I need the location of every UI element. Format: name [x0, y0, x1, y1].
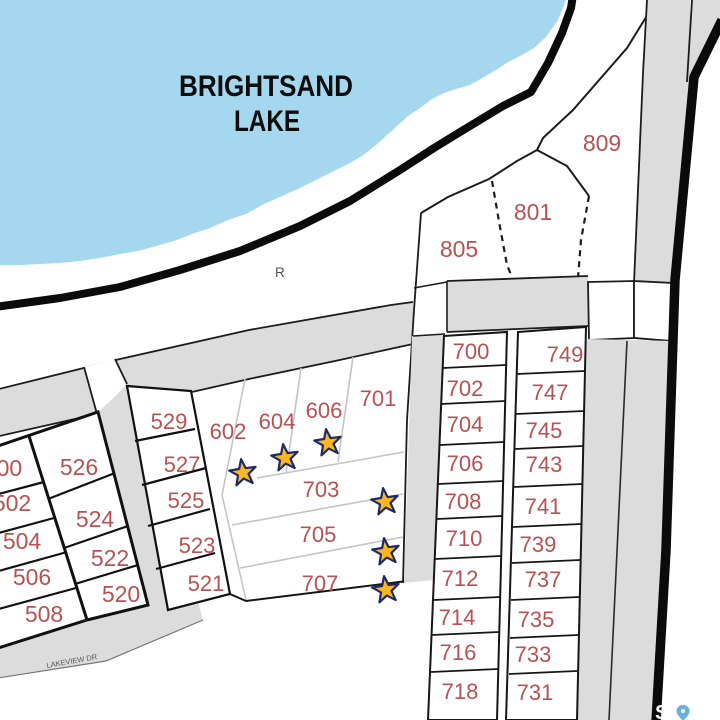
svg-text:702: 702: [447, 376, 484, 401]
svg-text:BRIGHTSAND: BRIGHTSAND: [179, 70, 353, 103]
svg-text:LAKE: LAKE: [234, 105, 300, 138]
svg-text:R: R: [275, 265, 285, 280]
svg-text:522: 522: [91, 545, 129, 571]
svg-text:714: 714: [439, 605, 476, 630]
svg-text:706: 706: [447, 451, 484, 476]
svg-text:703: 703: [303, 477, 340, 502]
svg-text:700: 700: [453, 339, 490, 364]
svg-text:718: 718: [442, 679, 479, 704]
svg-text:525: 525: [168, 488, 205, 513]
svg-text:529: 529: [151, 409, 188, 434]
svg-text:504: 504: [3, 528, 42, 554]
svg-text:502: 502: [0, 490, 31, 516]
svg-text:604: 604: [259, 409, 296, 434]
svg-text:739: 739: [520, 532, 557, 557]
svg-text:731: 731: [517, 680, 554, 705]
svg-text:701: 701: [360, 386, 397, 411]
svg-text:743: 743: [526, 452, 563, 477]
svg-text:745: 745: [526, 418, 563, 443]
svg-text:500: 500: [0, 455, 22, 481]
svg-text:735: 735: [518, 607, 555, 632]
svg-text:508: 508: [25, 601, 63, 627]
svg-text:526: 526: [60, 454, 98, 480]
svg-text:737: 737: [525, 567, 562, 592]
svg-text:716: 716: [440, 640, 477, 665]
svg-text:524: 524: [76, 506, 115, 532]
svg-text:606: 606: [306, 398, 343, 423]
svg-text:506: 506: [13, 564, 51, 590]
svg-text:707: 707: [302, 571, 339, 596]
svg-text:704: 704: [447, 412, 484, 437]
svg-text:801: 801: [514, 199, 552, 225]
svg-text:809: 809: [583, 130, 621, 156]
svg-text:733: 733: [515, 642, 552, 667]
svg-text:705: 705: [300, 522, 337, 547]
svg-text:521: 521: [188, 571, 225, 596]
svg-text:712: 712: [442, 566, 479, 591]
svg-text:747: 747: [532, 380, 569, 405]
svg-text:S: S: [655, 702, 668, 720]
svg-text:741: 741: [525, 494, 562, 519]
svg-text:520: 520: [102, 581, 140, 607]
svg-text:805: 805: [440, 236, 478, 262]
svg-text:602: 602: [210, 419, 247, 444]
svg-text:710: 710: [446, 526, 483, 551]
svg-text:708: 708: [445, 489, 482, 514]
svg-text:749: 749: [547, 342, 584, 367]
